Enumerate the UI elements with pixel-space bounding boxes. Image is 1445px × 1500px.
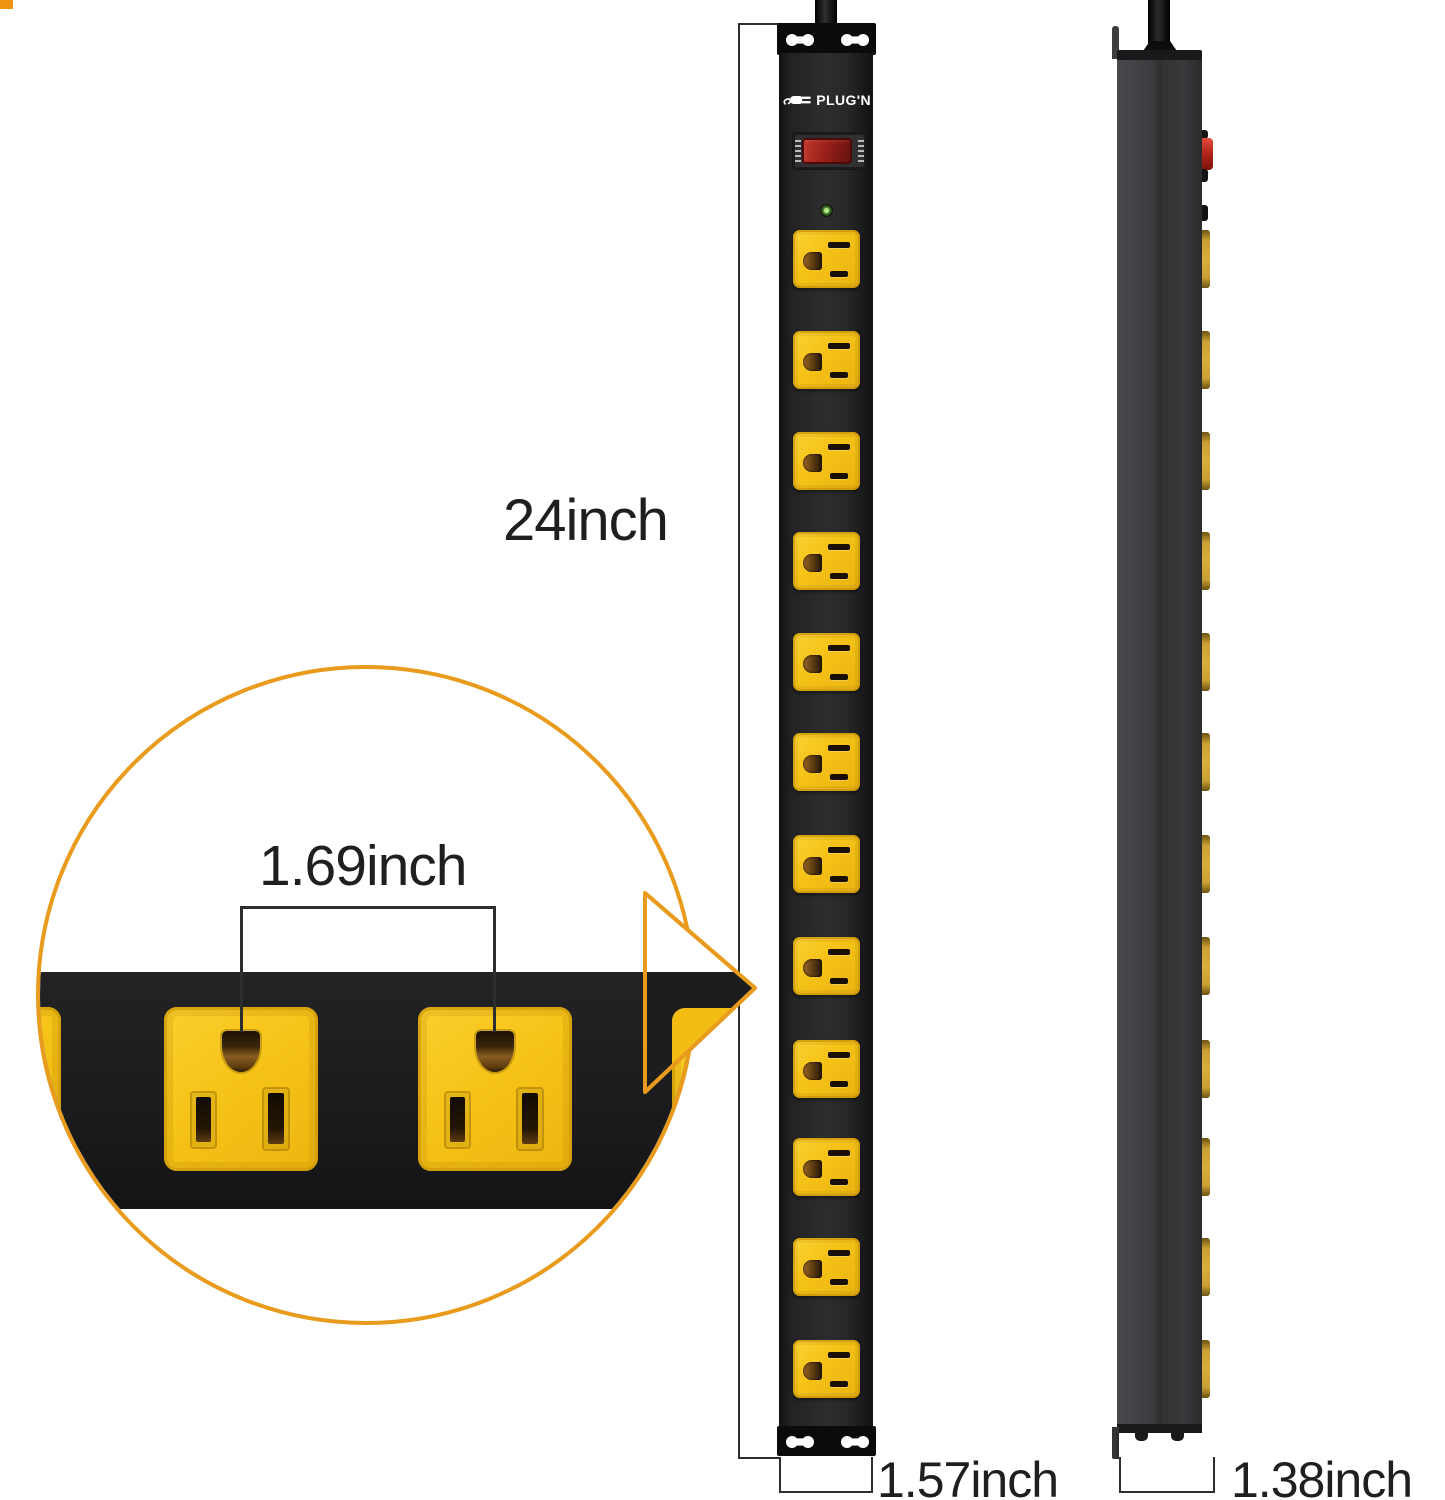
slot-opening [268,1093,284,1144]
outlet-hot-slot [830,573,848,579]
power-cord-side [1148,0,1170,46]
outlet-side-bump [1202,835,1210,893]
brand-logo: PLUG'N [783,88,871,112]
outlet-front [793,532,860,590]
keyhole-slot-icon [840,33,870,47]
power-switch-bezel [793,133,866,169]
outlet-inset [36,1007,61,1171]
outlet-ground-hole [803,857,822,875]
outlet-ground-hole [803,959,822,977]
outlet-front [793,1238,860,1296]
keyhole-slot-icon [785,1435,815,1449]
outlet-hot-slot [830,1279,848,1285]
outlet-side-bump [1202,1138,1210,1196]
outlet-side-bump [1202,331,1210,389]
outlet-neutral-slot [828,745,850,751]
outlet-hot-slot [830,978,848,984]
outlet-front [793,937,860,995]
side-bottom-cap [1117,1424,1202,1433]
plug-icon [783,90,813,110]
outlet-side-bump [1202,1340,1210,1398]
outlet-neutral-slot [828,645,850,651]
outlet-side-bump [1202,633,1210,691]
front-width-dim-bracket [779,1457,873,1493]
depth-dim-bracket [1119,1457,1215,1493]
outlet-front [793,733,860,791]
outlet-hot-slot [830,876,848,882]
outlet-side-bump [1202,432,1210,490]
outlet-side-bump [1202,733,1210,791]
outlet-side-bump [1202,1040,1210,1098]
spacing-dim-bracket [240,906,496,909]
switch-marks-right [858,140,864,162]
outlet-neutral-slot [444,1091,471,1149]
power-switch-rocker [802,138,852,164]
switch-marks-left [795,140,801,162]
outlet-front [793,230,860,288]
outlet-ground-hole [222,1031,260,1072]
spacing-dim-right-line [493,906,496,1032]
outlet-hot-slot [516,1087,544,1151]
outlet-hot-slot [830,372,848,378]
outlet-front [793,1340,860,1398]
power-led [820,204,833,217]
corner-artifact-mark [0,0,13,9]
outlet-front [793,1040,860,1098]
outlet-neutral-slot [828,949,850,955]
slot-opening [450,1097,465,1142]
height-dim-tick-bottom [738,1457,779,1459]
outlet-ground-hole [803,454,822,472]
outlet-neutral-slot [828,1352,850,1358]
outlet-neutral-slot [828,1250,850,1256]
inset-strip-band [36,972,696,1209]
magnifier-tail [600,860,780,1110]
outlet-side-bump [1202,1238,1210,1296]
switch-bezel-side-bump [1202,169,1208,182]
outlet-side-bump [1202,937,1210,995]
magnifier-inset-circle [36,665,696,1325]
outlet-hot-slot [830,1179,848,1185]
side-body-right-face [1161,60,1202,1426]
outlet-front [793,633,860,691]
outlet-hot-slot [830,1081,848,1087]
outlet-hot-slot [830,473,848,479]
outlet-neutral-slot [828,444,850,450]
depth-label: 1.38inch [1231,1451,1412,1500]
outlet-neutral-slot [828,1150,850,1156]
outlet-neutral-slot [828,544,850,550]
height-label: 24inch [503,487,668,554]
keyhole-slot-icon [840,1435,870,1449]
outlet-neutral-slot [828,847,850,853]
outlet-side-bump [1202,532,1210,590]
outlet-neutral-slot [828,1052,850,1058]
outlet-ground-hole [803,755,822,773]
slot-opening [522,1093,538,1144]
height-dim-tick-top [738,23,779,25]
height-dim-line [738,23,740,1459]
outlet-hot-slot [262,1087,290,1151]
outlet-ground-hole [803,353,822,371]
outlet-ground-hole [803,655,822,673]
product-dimension-diagram: 24inch PLUG'N [0,0,1445,1500]
outlet-hot-slot [830,774,848,780]
outlet-front [793,432,860,490]
outlet-ground-hole [803,252,822,270]
outlet-ground-hole [803,1260,822,1278]
keyhole-slot-icon [785,33,815,47]
outlet-ground-hole [803,1362,822,1380]
front-width-label: 1.57inch [877,1451,1058,1500]
outlet-ground-hole [476,1031,514,1072]
power-switch-side [1202,138,1213,170]
depth-dim-left-extension [1117,1433,1119,1459]
spacing-label: 1.69inch [259,833,467,899]
spacing-dim-left-line [240,906,243,1032]
side-body-left-face [1117,60,1161,1426]
slot-opening [196,1097,211,1142]
outlet-ground-hole [803,1160,822,1178]
outlet-neutral-slot [828,343,850,349]
mount-foot [1135,1433,1148,1441]
brand-text: PLUG'N [816,92,871,108]
tail-partial-outlet [672,1008,780,1110]
outlet-hot-slot [830,674,848,680]
outlet-front [793,835,860,893]
outlet-side-bump [1202,230,1210,288]
mount-foot [1171,1433,1184,1441]
outlet-hot-slot [830,271,848,277]
outlet-front [793,1138,860,1196]
outlet-front [793,331,860,389]
led-side-bump [1202,205,1208,221]
outlet-ground-hole [803,1062,822,1080]
outlet-neutral-slot [190,1091,217,1149]
outlet-hot-slot [830,1381,848,1387]
outlet-neutral-slot [828,242,850,248]
outlet-ground-hole [803,554,822,572]
